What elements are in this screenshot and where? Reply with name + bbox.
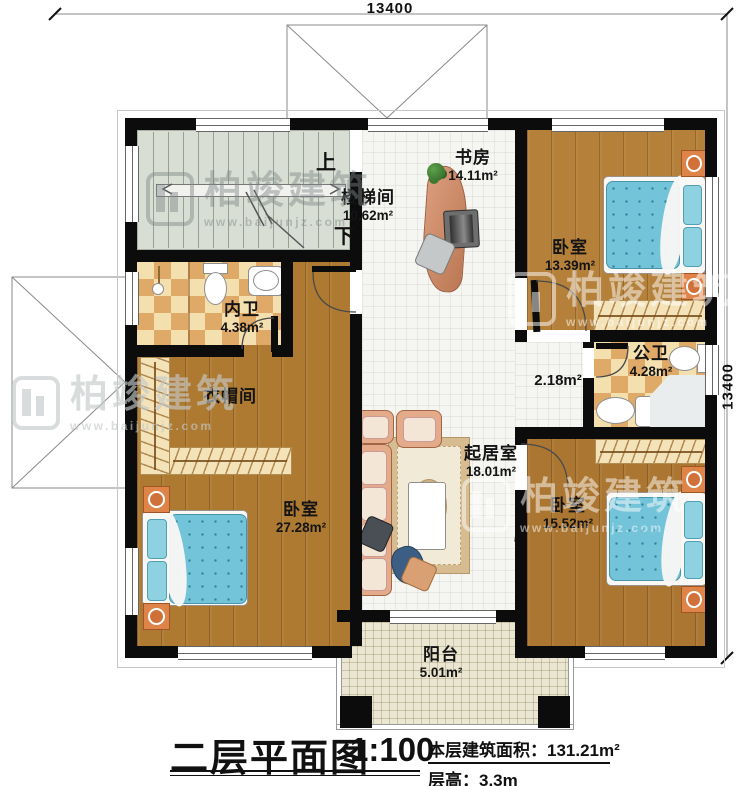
window: [705, 345, 719, 395]
room-label-cloakroom: 衣帽间: [190, 387, 270, 407]
pillow: [683, 185, 702, 225]
wall: [337, 610, 390, 622]
room-area: 4.38m²: [210, 320, 274, 336]
room-label-bedroom-sw: 卧室 27.28m²: [264, 500, 338, 536]
wardrobe-cloak-vertical: [140, 357, 170, 475]
stair-rail: [156, 184, 346, 197]
room-label-study: 书房 14.11m²: [428, 148, 518, 184]
balcony-column-right: [538, 696, 570, 728]
nightstand: [143, 486, 170, 513]
nightstand: [681, 586, 707, 613]
room-name: 卧室: [535, 238, 605, 258]
wardrobe-ne: [593, 300, 707, 332]
stair-down-label: 下: [334, 220, 354, 249]
room-label-bedroom-se: 卧室 15.52m²: [535, 496, 601, 532]
wall: [515, 427, 717, 439]
wall: [281, 262, 293, 357]
brand-logo-icon: [12, 376, 60, 430]
room-name: 阳台: [408, 645, 474, 665]
wall: [137, 345, 244, 357]
wardrobe-se: [595, 439, 707, 464]
window: [178, 646, 312, 660]
bed-se: [606, 492, 707, 586]
floor-height-label: 层高：: [428, 771, 479, 786]
coffee-table: [408, 482, 446, 550]
room-area: 18.01m²: [458, 464, 524, 480]
wall: [590, 330, 717, 342]
pillow: [684, 541, 703, 579]
balcony-sliding-door: [390, 610, 496, 624]
nightstand: [143, 603, 170, 630]
wall: [583, 342, 594, 348]
room-name: 书房: [428, 148, 518, 168]
sofa-cushion: [361, 451, 387, 485]
dimension-top: 13400: [357, 0, 423, 17]
titleblock-divider: [428, 762, 610, 764]
room-area: 27.28m²: [264, 520, 338, 536]
room-area: 2.18m²: [528, 372, 588, 390]
plan-scale: 1:100: [350, 731, 434, 769]
wall: [137, 250, 362, 262]
window: [585, 646, 665, 660]
room-area: 15.52m²: [535, 516, 601, 532]
stair-up-label: 上: [316, 146, 336, 175]
room-name: 内卫: [210, 300, 274, 320]
window: [368, 118, 488, 132]
sink: [253, 270, 279, 291]
wall: [350, 314, 362, 646]
nightstand: [681, 273, 707, 300]
dimension-right: 13400: [720, 357, 737, 417]
room-label-hallway: 2.18m²: [528, 372, 588, 390]
window: [705, 177, 719, 297]
room-area: 5.01m²: [408, 665, 474, 681]
floor-area-label: 本层建筑面积：: [428, 741, 547, 760]
room-label-public-bath: 公卫 4.28m²: [622, 344, 680, 380]
window: [196, 118, 290, 132]
armchair-cushion: [362, 416, 389, 439]
room-area: 13.39m²: [535, 258, 605, 274]
room-label-inner-bath: 内卫 4.38m²: [210, 300, 274, 336]
title-underline: [170, 770, 420, 776]
room-area: 4.28m²: [622, 364, 680, 380]
sofa-cushion: [361, 558, 387, 591]
room-name: 楼梯间: [328, 188, 408, 208]
window: [125, 146, 139, 222]
bath-partition: [188, 262, 190, 345]
window: [125, 548, 139, 615]
wardrobe-cloak-horizontal: [168, 447, 292, 475]
nightstand: [681, 466, 707, 493]
room-label-stairwell: 楼梯间 10.62m²: [328, 188, 408, 224]
armchair-cushion: [403, 417, 436, 442]
floor-height-value: 3.3m: [479, 771, 518, 786]
pillow: [147, 519, 167, 559]
window: [552, 118, 664, 132]
floor-area-row: 本层建筑面积：131.21m²: [428, 736, 620, 761]
room-name: 起居室: [458, 444, 524, 464]
shower-hose: [158, 266, 160, 284]
floor-area-value: 131.21m²: [547, 741, 620, 760]
room-label-balcony: 阳台 5.01m²: [408, 645, 474, 681]
door-leaf-master-suite: [312, 266, 356, 272]
room-name: 卧室: [264, 500, 338, 520]
shower-head: [152, 283, 164, 295]
floorplan-canvas: 13400 13400: [0, 0, 750, 786]
room-area: 14.11m²: [428, 168, 518, 184]
room-name: 公卫: [622, 344, 680, 364]
nightstand: [681, 150, 707, 177]
balcony-column-left: [340, 696, 372, 728]
pillow: [684, 501, 703, 539]
armchair: [396, 410, 442, 448]
pillow: [147, 561, 167, 601]
wall: [515, 330, 527, 342]
room-label-bedroom-ne: 卧室 13.39m²: [535, 238, 605, 274]
floor-height-row: 层高：3.3m: [428, 766, 518, 786]
room-name: 卧室: [535, 496, 601, 516]
room-label-living: 起居室 18.01m²: [458, 444, 524, 480]
sink: [596, 397, 635, 424]
pillow: [683, 227, 702, 267]
bed-sw: [142, 510, 248, 606]
room-name: 衣帽间: [190, 387, 270, 407]
window: [125, 272, 139, 325]
bed-ne: [603, 176, 706, 274]
